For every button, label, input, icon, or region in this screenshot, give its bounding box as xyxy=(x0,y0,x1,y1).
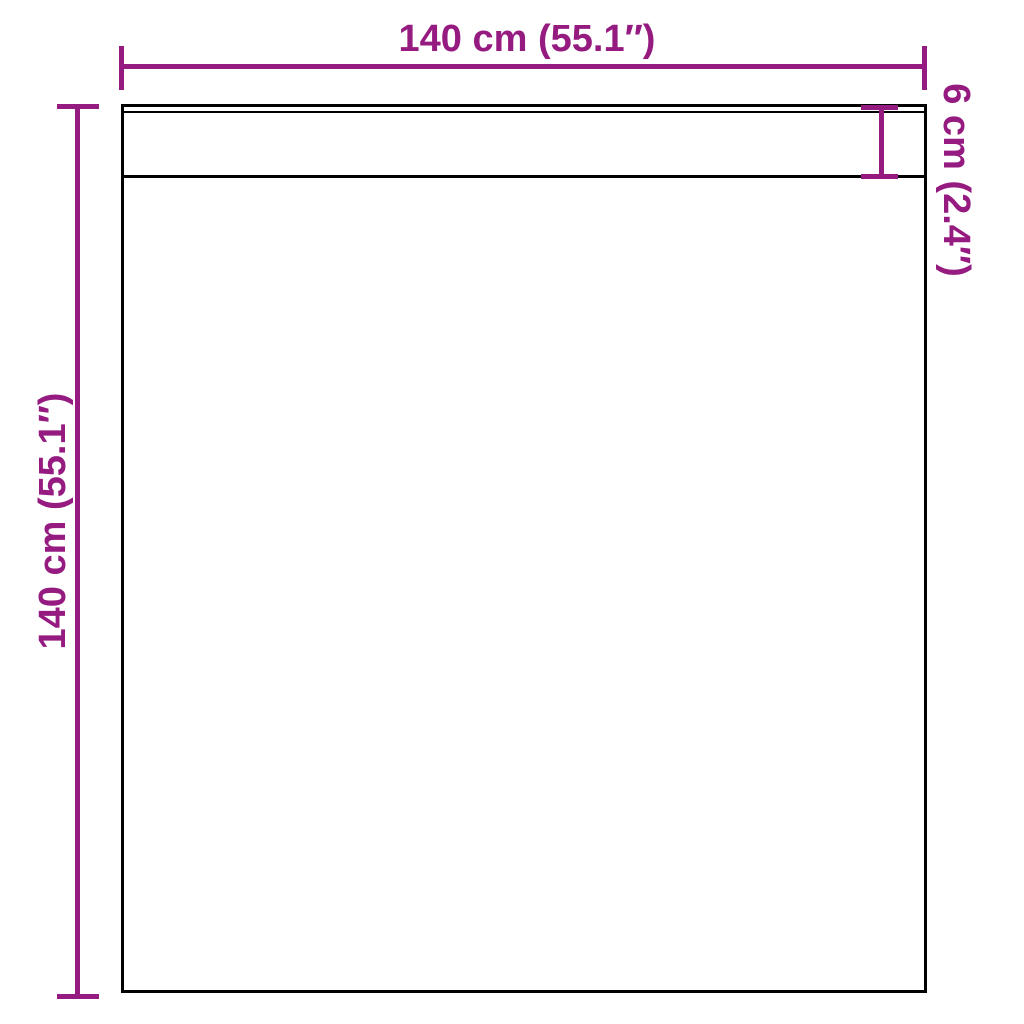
width-dimension-label: 140 cm (55.1″) xyxy=(399,20,656,58)
band-dimension-cap-top xyxy=(861,105,898,110)
dimension-diagram: 140 cm (55.1″) 140 cm (55.1″) 6 cm (2.4″… xyxy=(0,0,1024,1024)
product-top-seam-line xyxy=(121,111,927,113)
width-dimension-cap-left xyxy=(119,46,124,90)
height-dimension-cap-bottom xyxy=(57,994,99,999)
product-band-bottom-line xyxy=(121,175,927,178)
width-dimension-line xyxy=(121,64,927,69)
band-dimension-line xyxy=(879,107,884,179)
height-dimension-label: 140 cm (55.1″) xyxy=(34,393,72,650)
width-dimension-cap-right xyxy=(922,46,927,90)
height-dimension-cap-top xyxy=(57,104,99,109)
product-outline xyxy=(121,104,927,993)
band-dimension-label: 6 cm (2.4″) xyxy=(937,83,975,277)
height-dimension-line xyxy=(75,104,80,999)
band-dimension-cap-bottom xyxy=(861,174,898,179)
